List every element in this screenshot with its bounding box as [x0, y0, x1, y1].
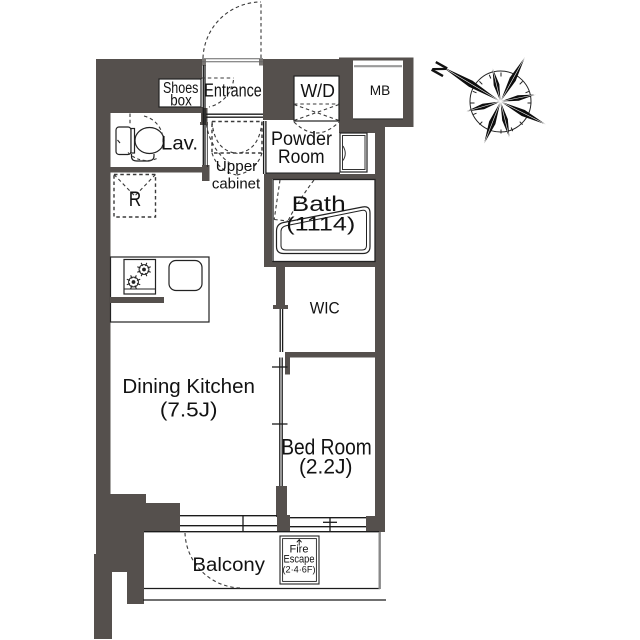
svg-text:Bath: Bath	[292, 193, 346, 216]
svg-text:(2.2J): (2.2J)	[299, 456, 353, 479]
svg-text:Lav.: Lav.	[161, 134, 198, 155]
svg-text:R: R	[129, 188, 142, 211]
svg-text:(7.5J): (7.5J)	[160, 399, 218, 422]
svg-text:Upper: Upper	[216, 159, 258, 175]
svg-text:W/D: W/D	[300, 80, 335, 101]
svg-text:cabinet: cabinet	[212, 177, 260, 193]
svg-text:WIC: WIC	[310, 299, 340, 318]
svg-text:Dining Kitchen: Dining Kitchen	[122, 376, 255, 398]
svg-text:(2·4·6F): (2·4·6F)	[283, 565, 316, 576]
svg-text:MB: MB	[370, 83, 391, 98]
svg-text:Entrance: Entrance	[204, 81, 262, 101]
svg-text:Room: Room	[278, 147, 325, 168]
svg-text:box: box	[170, 93, 192, 110]
svg-text:Balcony: Balcony	[192, 555, 265, 576]
svg-text:(1114): (1114)	[286, 215, 355, 236]
